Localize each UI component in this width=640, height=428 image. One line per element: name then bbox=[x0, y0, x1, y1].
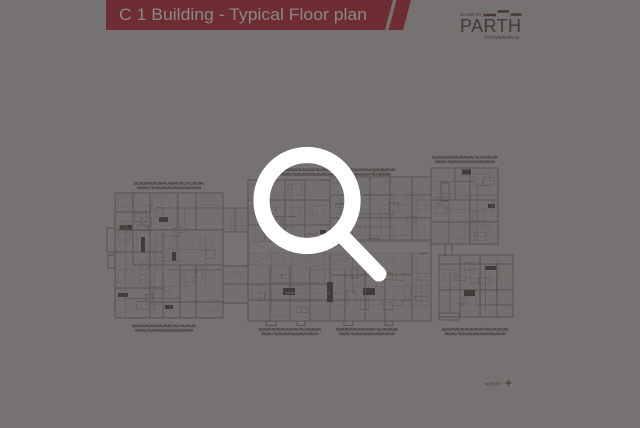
svg-text:1503,1603,1 702,1803,2002,2003: 1503,1603,1 702,1803,2002,2003,2103,2203… bbox=[339, 331, 395, 336]
svg-text:TOWERS: TOWERS bbox=[484, 35, 520, 40]
svg-text:1503,1603,1 702,1803,2002,2003: 1503,1603,1 702,1803,2002,2003,2103,2203… bbox=[137, 185, 201, 190]
svg-text:1503,1603,1 702,1803,2002,2003: 1503,1603,1 702,1803,2002,2003,2103,2203… bbox=[135, 328, 193, 333]
svg-text:1503,1603,1 702,1803,2002,2003: 1503,1603,1 702,1803,2002,2003,2103,2203… bbox=[262, 331, 319, 336]
svg-text:1503,1603,1 702,1803,2002,2003: 1503,1603,1 702,1803,2002,2003,2103,2203… bbox=[435, 159, 495, 164]
svg-text:PARTH: PARTH bbox=[460, 16, 521, 36]
svg-text:NORTH: NORTH bbox=[485, 382, 501, 387]
svg-text:C 1 Building - Typical Floor p: C 1 Building - Typical Floor plan bbox=[119, 6, 367, 24]
svg-text:1503,1603,1 702,1803,2002,2003: 1503,1603,1 702,1803,2002,2003,2103,2203… bbox=[445, 331, 506, 336]
